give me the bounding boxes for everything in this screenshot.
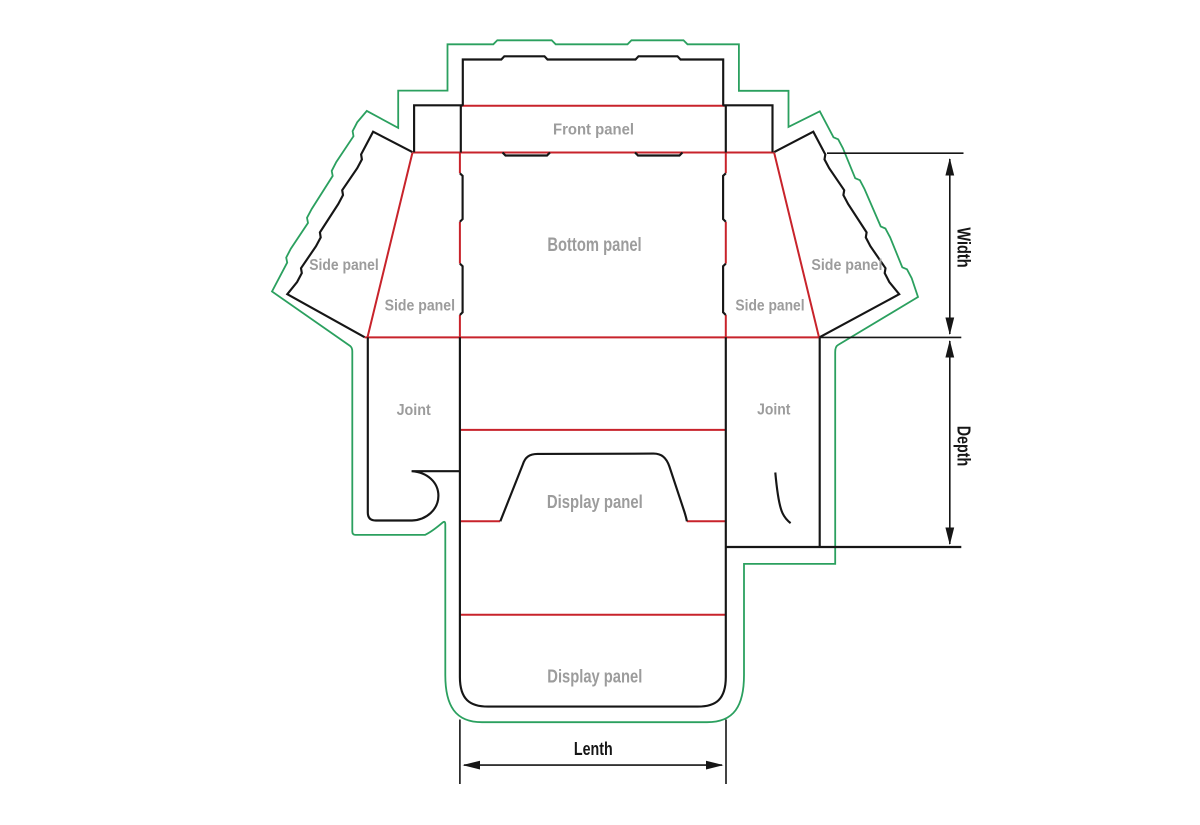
svg-text:Width: Width [954,227,975,267]
svg-text:Side panel: Side panel [385,297,455,314]
svg-text:Side panel: Side panel [811,257,882,274]
svg-text:Display panel: Display panel [547,667,642,687]
svg-text:Joint: Joint [397,402,431,419]
svg-text:Side panel: Side panel [735,297,804,314]
svg-text:Joint: Joint [757,402,790,419]
svg-text:Side panel: Side panel [309,257,379,274]
svg-text:Bottom panel: Bottom panel [547,235,641,256]
svg-text:Front panel: Front panel [553,122,634,139]
svg-text:Lenth: Lenth [574,738,613,759]
svg-text:Depth: Depth [954,426,975,467]
svg-text:Display panel: Display panel [547,492,643,512]
